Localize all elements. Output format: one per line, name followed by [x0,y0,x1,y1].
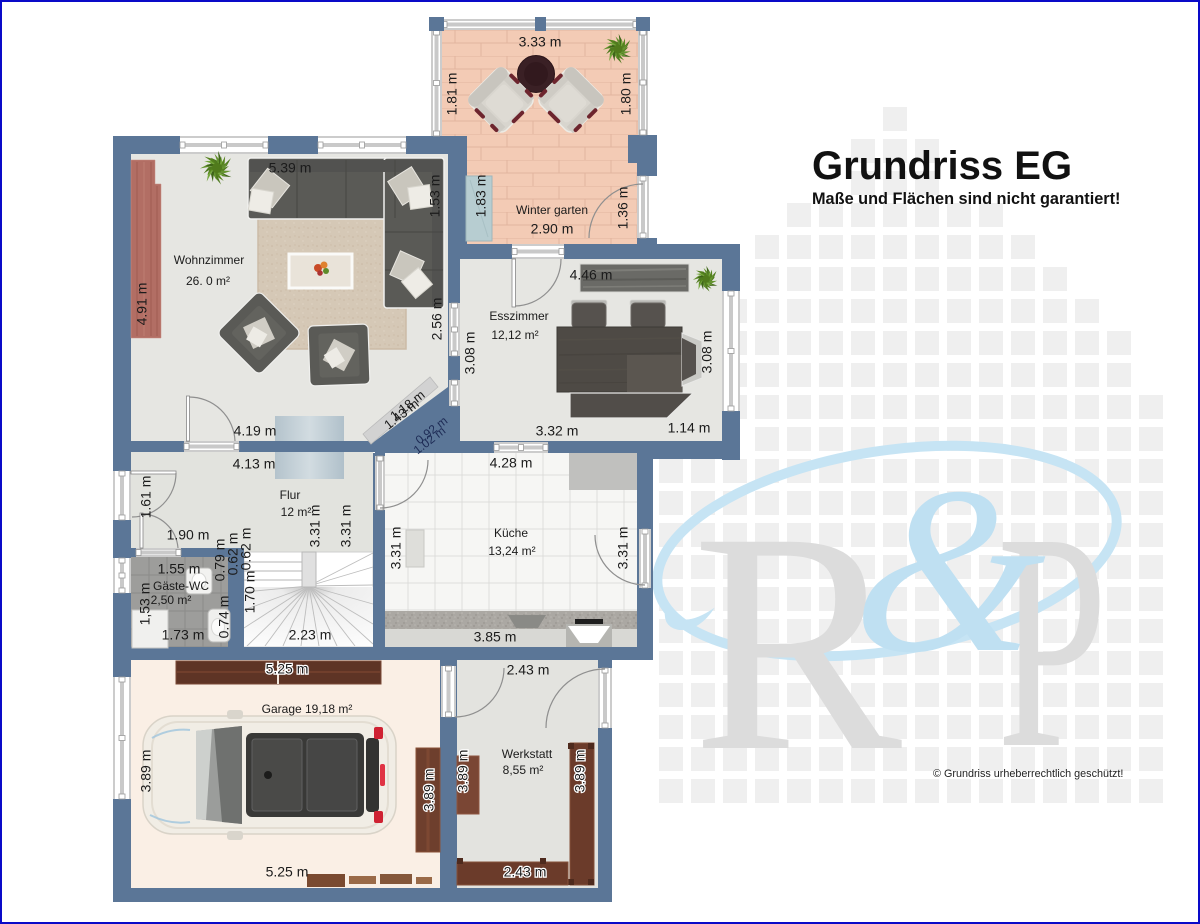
svg-text:Maße und Flächen sind nicht ga: Maße und Flächen sind nicht garantiert! [812,190,1120,208]
svg-text:1.81 m: 1.81 m [444,73,460,116]
svg-text:&: & [841,438,1063,702]
svg-text:5.39 m: 5.39 m [269,160,312,176]
svg-text:1.90 m: 1.90 m [167,527,210,543]
svg-text:3.89 m: 3.89 m [455,750,471,793]
svg-text:3.32 m: 3.32 m [536,423,579,439]
svg-text:Grundriss EG: Grundriss EG [812,144,1072,188]
svg-text:26. 0 m²: 26. 0 m² [186,274,230,288]
svg-text:3.85 m: 3.85 m [474,629,517,645]
svg-text:0.62 m: 0.62 m [238,528,254,571]
svg-text:2.56 m: 2.56 m [429,298,445,341]
svg-text:5.25 m: 5.25 m [266,864,309,880]
svg-text:3.08 m: 3.08 m [699,331,715,374]
svg-text:1.80 m: 1.80 m [618,73,634,116]
svg-text:5.25 m: 5.25 m [266,661,309,677]
svg-text:1.53 m: 1.53 m [427,175,443,218]
svg-text:Esszimmer: Esszimmer [489,309,548,323]
svg-text:1,53 m: 1,53 m [137,583,153,626]
svg-text:4.28 m: 4.28 m [490,455,533,471]
svg-text:8,55 m²: 8,55 m² [503,763,544,777]
svg-text:Wohnzimmer: Wohnzimmer [174,253,244,267]
svg-text:Flur: Flur [280,488,301,502]
svg-text:1.70 m: 1.70 m [242,571,258,614]
svg-text:3.33 m: 3.33 m [519,34,562,50]
svg-text:2.43 m: 2.43 m [507,662,550,678]
svg-text:3.31 m: 3.31 m [388,527,404,570]
svg-text:2,50 m²: 2,50 m² [151,593,192,607]
svg-text:1.55 m: 1.55 m [158,561,201,577]
svg-text:0.74 m: 0.74 m [216,596,232,639]
svg-text:2.23 m: 2.23 m [289,627,332,643]
svg-text:12,12 m²: 12,12 m² [491,328,538,342]
svg-text:Winter garten: Winter garten [516,203,588,217]
svg-text:3.89 m: 3.89 m [421,769,437,812]
svg-text:2.90 m: 2.90 m [531,221,574,237]
svg-text:1.73 m: 1.73 m [162,627,205,643]
svg-text:4.19 m: 4.19 m [234,423,277,439]
svg-text:13,24 m²: 13,24 m² [488,544,535,558]
svg-text:2.43 m: 2.43 m [504,864,547,880]
svg-text:1.61 m: 1.61 m [138,476,154,519]
svg-text:3.31 m: 3.31 m [338,505,354,548]
svg-text:4.46 m: 4.46 m [570,267,613,283]
svg-text:Gäste-WC: Gäste-WC [153,579,209,593]
svg-text:Garage 19,18 m²: Garage 19,18 m² [262,702,353,716]
svg-text:4.91 m: 4.91 m [134,283,150,326]
svg-text:3.08 m: 3.08 m [462,332,478,375]
svg-text:4.13 m: 4.13 m [233,456,276,472]
svg-text:Werkstatt: Werkstatt [502,747,553,761]
svg-text:3.89 m: 3.89 m [572,750,588,793]
svg-text:© Grundriss urheberrechtlich g: © Grundriss urheberrechtlich geschützt! [933,768,1123,780]
svg-text:1.36 m: 1.36 m [615,187,631,230]
svg-text:1.14 m: 1.14 m [668,420,711,436]
svg-text:3.31 m: 3.31 m [307,505,323,548]
svg-text:3.89 m: 3.89 m [138,750,154,793]
svg-text:3.31 m: 3.31 m [615,527,631,570]
svg-text:Küche: Küche [494,526,528,540]
svg-text:1.83 m: 1.83 m [473,175,489,218]
